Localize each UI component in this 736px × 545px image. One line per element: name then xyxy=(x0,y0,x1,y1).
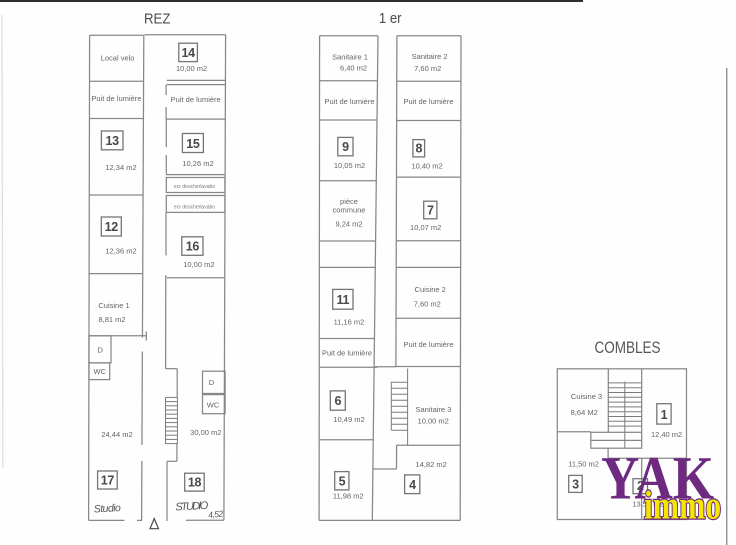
svg-text:Cuisine 2: Cuisine 2 xyxy=(415,285,446,294)
svg-text:Puit de lumière: Puit de lumière xyxy=(322,349,372,358)
svg-text:15: 15 xyxy=(186,137,200,151)
svg-text:7,60 m2: 7,60 m2 xyxy=(414,64,441,73)
svg-text:1: 1 xyxy=(661,408,668,422)
svg-text:9,24 m2: 9,24 m2 xyxy=(335,220,362,229)
svg-text:11,50 m2: 11,50 m2 xyxy=(568,459,599,468)
svg-text:10,26 m2: 10,26 m2 xyxy=(182,159,213,168)
svg-text:12,34 m2: 12,34 m2 xyxy=(105,163,136,172)
svg-text:Cuisine 3: Cuisine 3 xyxy=(571,392,602,401)
svg-text:12,40 m2: 12,40 m2 xyxy=(651,430,682,439)
svg-text:14,82 m2: 14,82 m2 xyxy=(416,460,447,469)
svg-text:WC: WC xyxy=(94,367,107,376)
svg-text:7: 7 xyxy=(427,203,434,217)
svg-text:12: 12 xyxy=(105,220,119,234)
svg-text:10,40 m2: 10,40 m2 xyxy=(411,162,442,171)
svg-text:5: 5 xyxy=(339,474,346,488)
svg-text:Puit de lumière: Puit de lumière xyxy=(403,340,453,349)
svg-text:Puit de lumière: Puit de lumière xyxy=(91,94,141,103)
svg-text:6: 6 xyxy=(334,394,341,408)
svg-text:9: 9 xyxy=(342,140,349,154)
svg-text:11: 11 xyxy=(336,293,349,307)
svg-text:D: D xyxy=(209,378,215,387)
svg-text:REZ: REZ xyxy=(144,9,171,26)
svg-text:ecr deucherlavabo: ecr deucherlavabo xyxy=(174,184,215,190)
svg-text:14: 14 xyxy=(181,46,195,60)
svg-text:10,05 m2: 10,05 m2 xyxy=(334,161,365,170)
svg-text:Puit de lumière: Puit de lumière xyxy=(171,95,221,104)
svg-text:Sanitaire 2: Sanitaire 2 xyxy=(412,52,448,61)
svg-text:Local velo: Local velo xyxy=(101,54,135,63)
svg-text:8,81 m2: 8,81 m2 xyxy=(98,315,125,324)
svg-text:Cuisine 1: Cuisine 1 xyxy=(98,301,129,310)
svg-text:3: 3 xyxy=(572,477,579,491)
svg-text:Studio: Studio xyxy=(94,502,122,515)
svg-text:8,64 M2: 8,64 M2 xyxy=(571,408,598,417)
svg-text:10,00 m2: 10,00 m2 xyxy=(418,416,449,425)
svg-text:ecr deucherlavabo: ecr deucherlavabo xyxy=(174,205,215,211)
svg-text:10,00 m2: 10,00 m2 xyxy=(183,260,214,269)
svg-text:16: 16 xyxy=(186,240,200,254)
svg-text:STUDIO: STUDIO xyxy=(175,500,209,514)
svg-text:immo: immo xyxy=(644,483,721,527)
svg-text:7,60 m2: 7,60 m2 xyxy=(414,299,441,308)
svg-text:Puit de lumière: Puit de lumière xyxy=(403,97,453,106)
svg-text:COMBLES: COMBLES xyxy=(594,339,660,358)
svg-text:Sanitaire 3: Sanitaire 3 xyxy=(415,405,451,414)
svg-text:4,52: 4,52 xyxy=(208,508,224,520)
svg-text:11,98 m2: 11,98 m2 xyxy=(333,492,364,501)
svg-text:18: 18 xyxy=(188,476,202,490)
svg-text:1 er: 1 er xyxy=(379,9,402,26)
svg-text:12,36 m2: 12,36 m2 xyxy=(105,247,136,256)
svg-text:4: 4 xyxy=(409,478,416,492)
svg-text:8: 8 xyxy=(415,142,422,156)
svg-text:13: 13 xyxy=(106,134,120,148)
svg-text:Puit de lumière: Puit de lumière xyxy=(324,97,374,106)
svg-text:17: 17 xyxy=(101,473,115,487)
svg-text:10,49 m2: 10,49 m2 xyxy=(333,415,364,424)
svg-text:11,16 m2: 11,16 m2 xyxy=(334,317,365,326)
svg-text:D: D xyxy=(97,346,103,355)
svg-text:10,07 m2: 10,07 m2 xyxy=(410,223,441,232)
svg-text:commune: commune xyxy=(333,206,366,215)
svg-text:WC: WC xyxy=(207,400,220,409)
svg-text:30,00 m2: 30,00 m2 xyxy=(190,428,221,437)
svg-text:6,40 m2: 6,40 m2 xyxy=(340,64,367,73)
svg-text:10,00 m2: 10,00 m2 xyxy=(176,64,207,73)
svg-text:Sanitaire 1: Sanitaire 1 xyxy=(332,52,368,61)
svg-text:24,44 m2: 24,44 m2 xyxy=(101,430,132,439)
